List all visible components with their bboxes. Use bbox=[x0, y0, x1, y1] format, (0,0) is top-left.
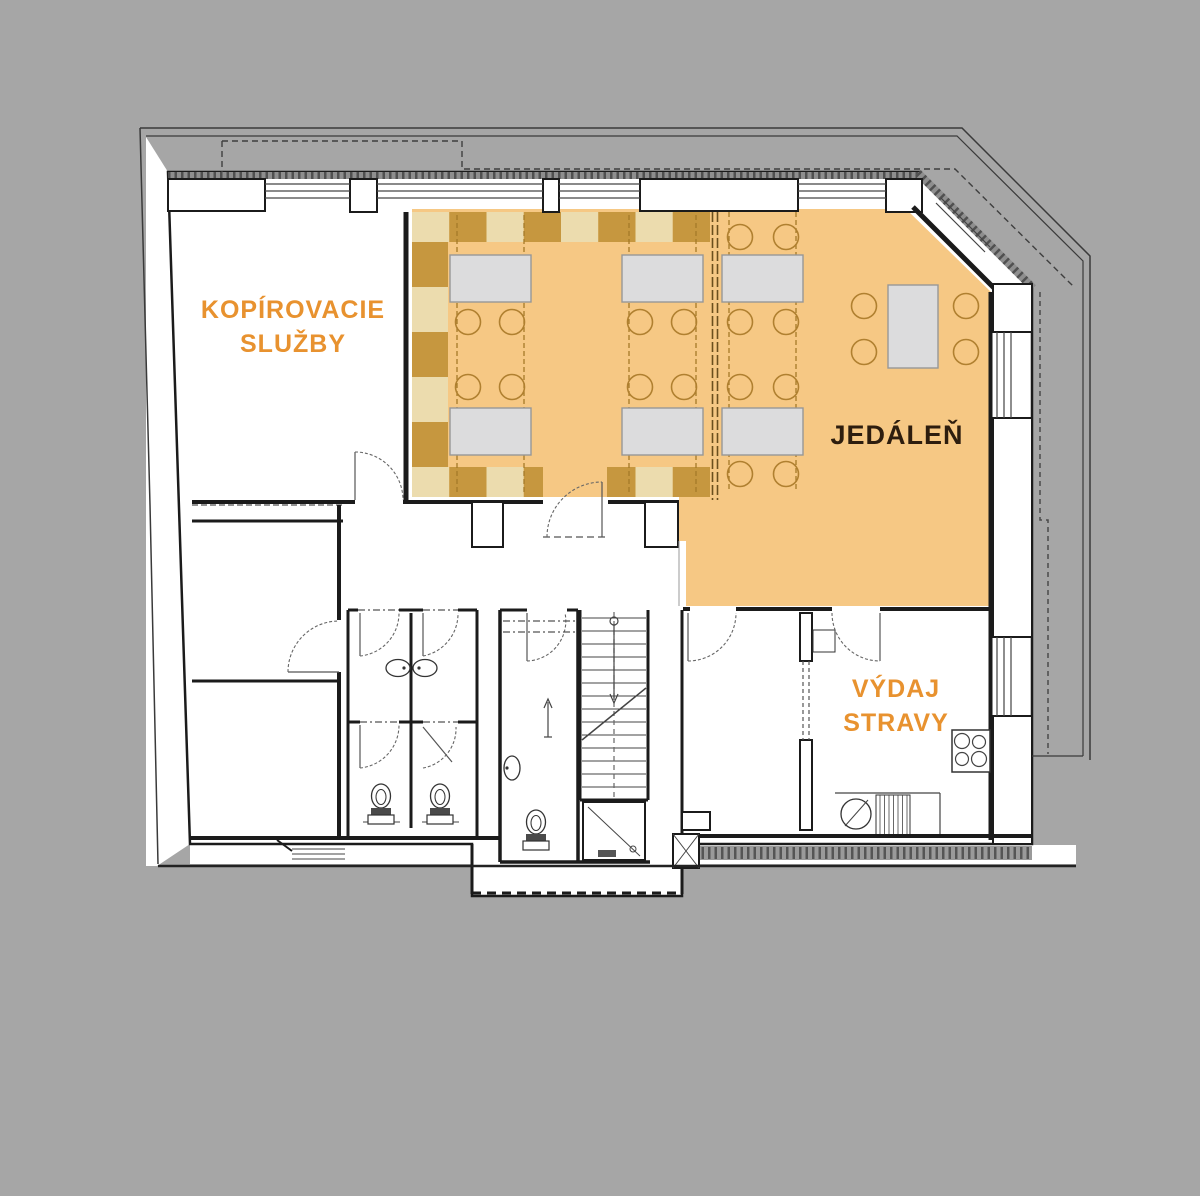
shaft bbox=[673, 834, 699, 868]
cooktop-icon bbox=[952, 730, 990, 772]
wall-pier bbox=[886, 179, 922, 212]
room-label-copy-services-line2: SLUŽBY bbox=[240, 328, 346, 358]
faucet-dot bbox=[417, 666, 420, 669]
wall-pier bbox=[543, 179, 559, 212]
shower-drain bbox=[598, 850, 616, 857]
table bbox=[622, 408, 703, 455]
faucet-dot bbox=[505, 766, 508, 769]
appliance bbox=[876, 795, 910, 836]
table bbox=[450, 255, 531, 302]
wall-pier bbox=[168, 179, 265, 211]
tile-border-bottom-right bbox=[607, 467, 710, 497]
table bbox=[622, 255, 703, 302]
room-label-food-serving-line2: STRAVY bbox=[843, 709, 949, 737]
table bbox=[722, 255, 803, 302]
wall-notch bbox=[682, 812, 710, 830]
room-label-dining: JEDÁLEŇ bbox=[830, 419, 963, 450]
wall-pier bbox=[993, 716, 1032, 844]
wall-pier bbox=[472, 502, 503, 547]
faucet-dot bbox=[402, 666, 405, 669]
wall-pier bbox=[800, 740, 812, 830]
wall-pier bbox=[993, 284, 1032, 332]
sink-icon bbox=[413, 660, 437, 677]
tile-border-left bbox=[412, 242, 448, 467]
room-label-copy-services-line1: KOPÍROVACIE bbox=[201, 295, 385, 324]
sink-icon bbox=[386, 660, 410, 677]
table bbox=[450, 408, 531, 455]
floor-plan: KOPÍROVACIE SLUŽBY JEDÁLEŇ VÝDAJ STRAVY bbox=[0, 0, 1200, 1196]
room-label-food-serving-line1: VÝDAJ bbox=[852, 673, 940, 703]
floor-plan-page: KOPÍROVACIE SLUŽBY JEDÁLEŇ VÝDAJ STRAVY bbox=[0, 0, 1200, 1196]
wall-pier bbox=[640, 179, 798, 211]
wall-pier bbox=[993, 418, 1032, 637]
wall-pier bbox=[800, 613, 812, 661]
table bbox=[722, 408, 803, 455]
wall-pier bbox=[350, 179, 377, 212]
table bbox=[888, 285, 938, 368]
shower-room bbox=[583, 802, 645, 860]
wall-pier bbox=[645, 502, 678, 547]
cabinet bbox=[813, 630, 835, 652]
